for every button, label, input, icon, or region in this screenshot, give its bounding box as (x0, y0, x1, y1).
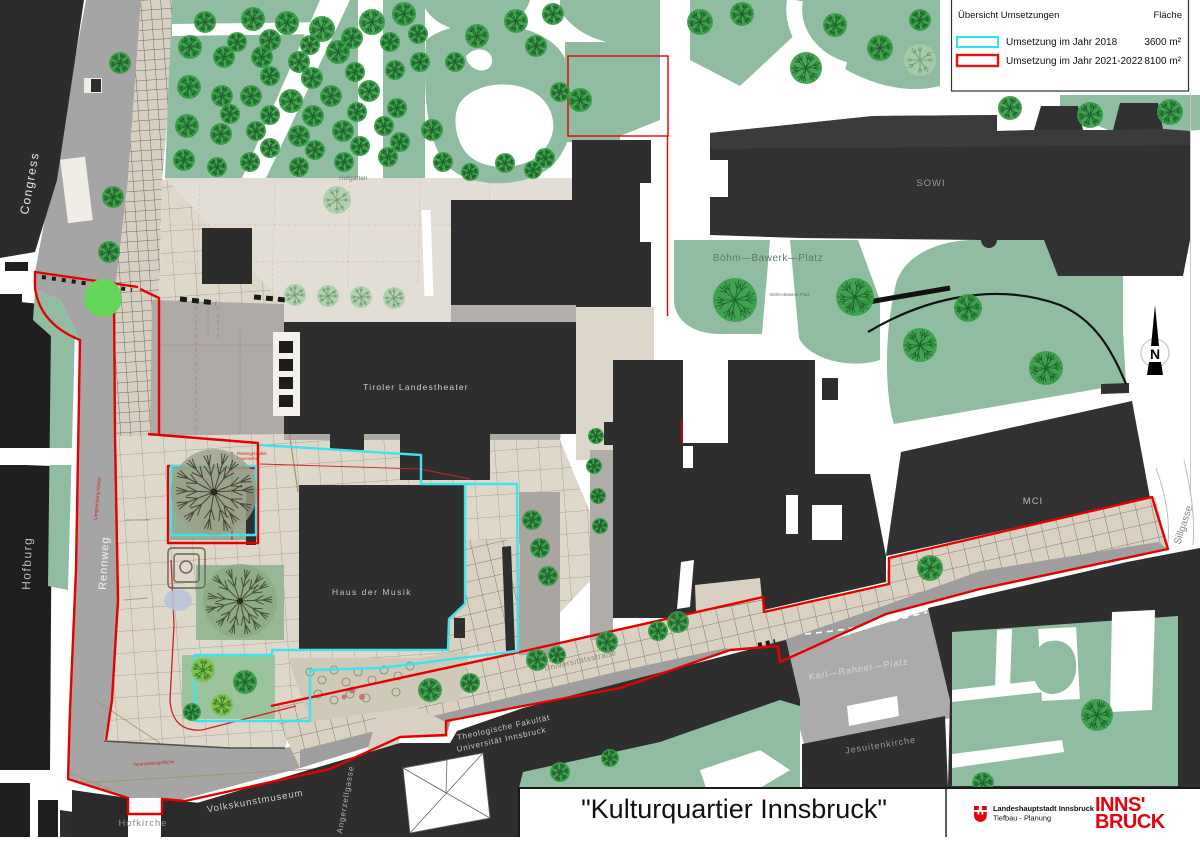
svg-text:"Kulturquartier Innsbruck": "Kulturquartier Innsbruck" (581, 794, 887, 824)
svg-text:MCI: MCI (1023, 496, 1043, 507)
svg-text:8100 m²: 8100 m² (1144, 56, 1181, 67)
svg-text:3600 m²: 3600 m² (1144, 37, 1181, 48)
svg-text:SOWI: SOWI (916, 178, 945, 189)
svg-text:Tiefbau - Planung: Tiefbau - Planung (993, 814, 1051, 823)
svg-text:Übersicht Umsetzungen: Übersicht Umsetzungen (958, 10, 1059, 21)
svg-text:Tiroler Landestheater: Tiroler Landestheater (363, 382, 469, 392)
svg-text:Umsetzung im Jahr 2018: Umsetzung im Jahr 2018 (1006, 37, 1118, 48)
svg-text:Böhm—Bawerk—Platz: Böhm—Bawerk—Platz (713, 253, 823, 264)
svg-text:Hofburg: Hofburg (19, 536, 35, 590)
svg-text:N: N (1150, 346, 1160, 362)
svg-text:Hofgarten: Hofgarten (339, 175, 368, 182)
svg-text:Böhm-Bawerk-Platz: Böhm-Bawerk-Platz (770, 292, 811, 297)
svg-text:Umsetzung im Jahr 2021-2022: Umsetzung im Jahr 2021-2022 (1006, 56, 1143, 67)
svg-text:BRUCK: BRUCK (1095, 811, 1166, 833)
svg-text:Hofkirche: Hofkirche (118, 818, 167, 829)
svg-text:Fläche: Fläche (1153, 10, 1182, 21)
svg-text:Landeshauptstadt Innsbruck: Landeshauptstadt Innsbruck (993, 804, 1095, 813)
svg-text:Haus der Musik: Haus der Musik (332, 587, 412, 597)
